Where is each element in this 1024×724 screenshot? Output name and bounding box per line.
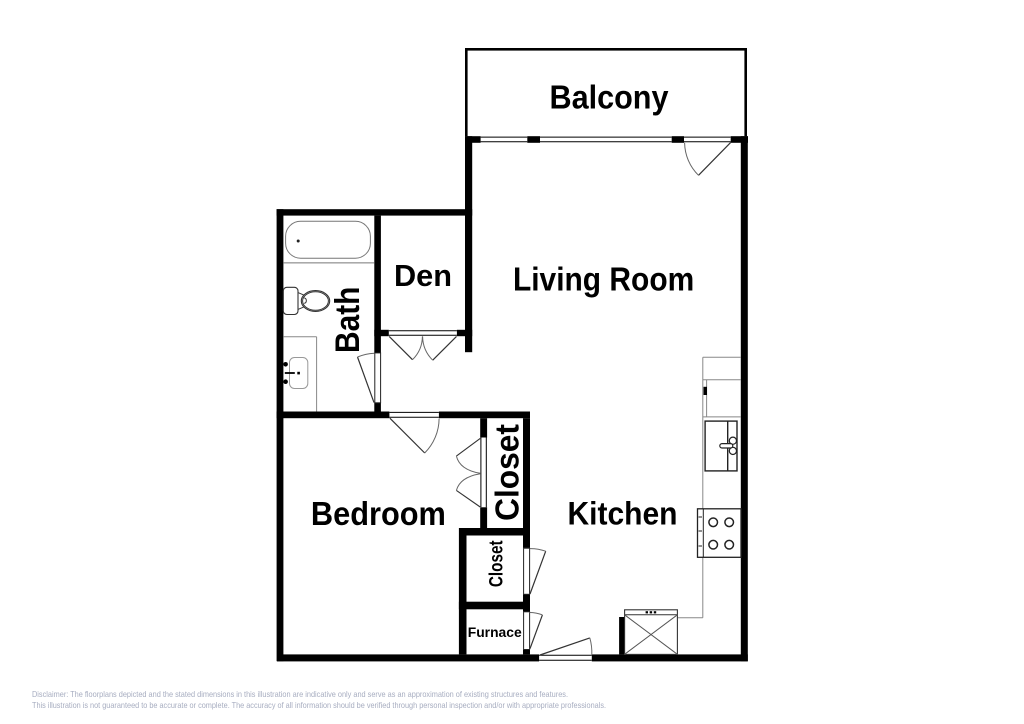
svg-text:This illustration is not guara: This illustration is not guaranteed to b… [32, 701, 606, 710]
svg-text:Kitchen: Kitchen [568, 496, 678, 532]
svg-text:Bedroom: Bedroom [311, 496, 446, 533]
svg-text:Closet: Closet [486, 540, 508, 587]
svg-text:Disclaimer: The floorplans dep: Disclaimer: The floorplans depicted and … [32, 690, 568, 699]
svg-text:Bath: Bath [329, 287, 367, 353]
svg-text:Den: Den [394, 258, 452, 293]
svg-text:Furnace: Furnace [468, 624, 522, 640]
svg-text:Balcony: Balcony [550, 80, 669, 117]
svg-text:Closet: Closet [489, 424, 526, 521]
svg-text:Living Room: Living Room [513, 262, 694, 299]
